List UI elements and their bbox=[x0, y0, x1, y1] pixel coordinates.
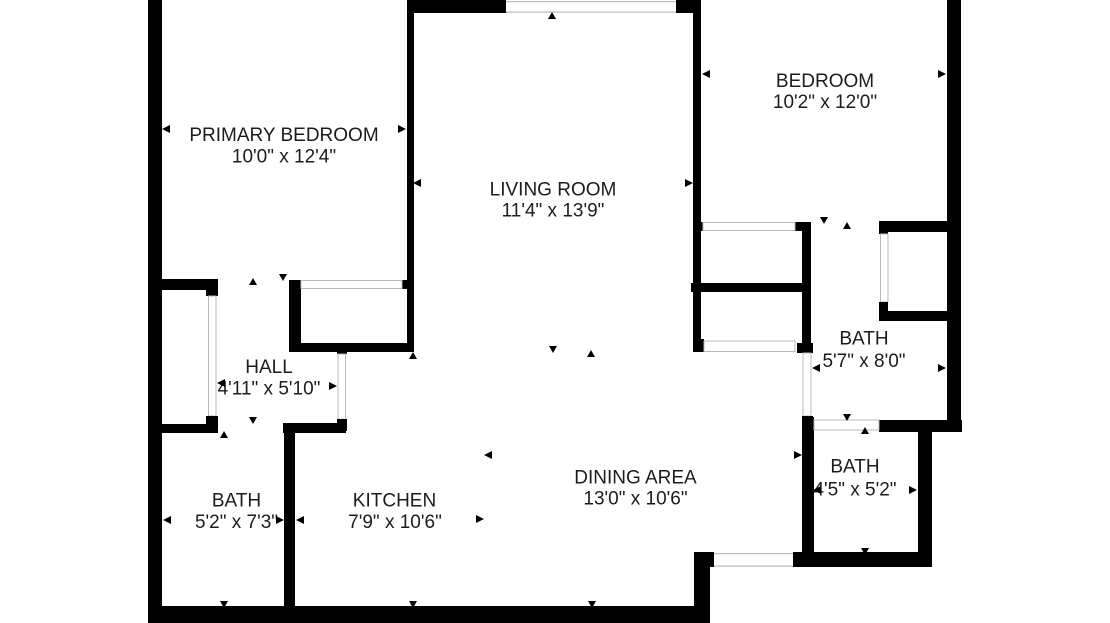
svg-text:10'2" x 12'0": 10'2" x 12'0" bbox=[773, 92, 877, 113]
svg-text:5'2" x 7'3": 5'2" x 7'3" bbox=[195, 512, 278, 533]
svg-text:BEDROOM: BEDROOM bbox=[776, 71, 874, 92]
svg-text:13'0" x 10'6": 13'0" x 10'6" bbox=[583, 489, 687, 510]
svg-text:5'7" x 8'0": 5'7" x 8'0" bbox=[822, 351, 905, 372]
svg-text:DINING AREA: DINING AREA bbox=[574, 468, 697, 489]
svg-text:BATH: BATH bbox=[839, 329, 888, 350]
svg-text:11'4" x 13'9": 11'4" x 13'9" bbox=[502, 201, 605, 222]
svg-text:10'0" x 12'4": 10'0" x 12'4" bbox=[232, 147, 336, 168]
svg-text:4'11" x 5'10": 4'11" x 5'10" bbox=[218, 379, 321, 400]
svg-text:BATH: BATH bbox=[212, 491, 261, 512]
svg-text:KITCHEN: KITCHEN bbox=[353, 491, 436, 512]
svg-text:PRIMARY BEDROOM: PRIMARY BEDROOM bbox=[189, 125, 378, 146]
svg-text:7'9" x 10'6": 7'9" x 10'6" bbox=[348, 512, 442, 533]
svg-text:LIVING ROOM: LIVING ROOM bbox=[490, 180, 617, 201]
svg-text:HALL: HALL bbox=[245, 357, 293, 378]
svg-text:4'5" x 5'2": 4'5" x 5'2" bbox=[813, 480, 896, 501]
svg-text:BATH: BATH bbox=[830, 457, 879, 478]
